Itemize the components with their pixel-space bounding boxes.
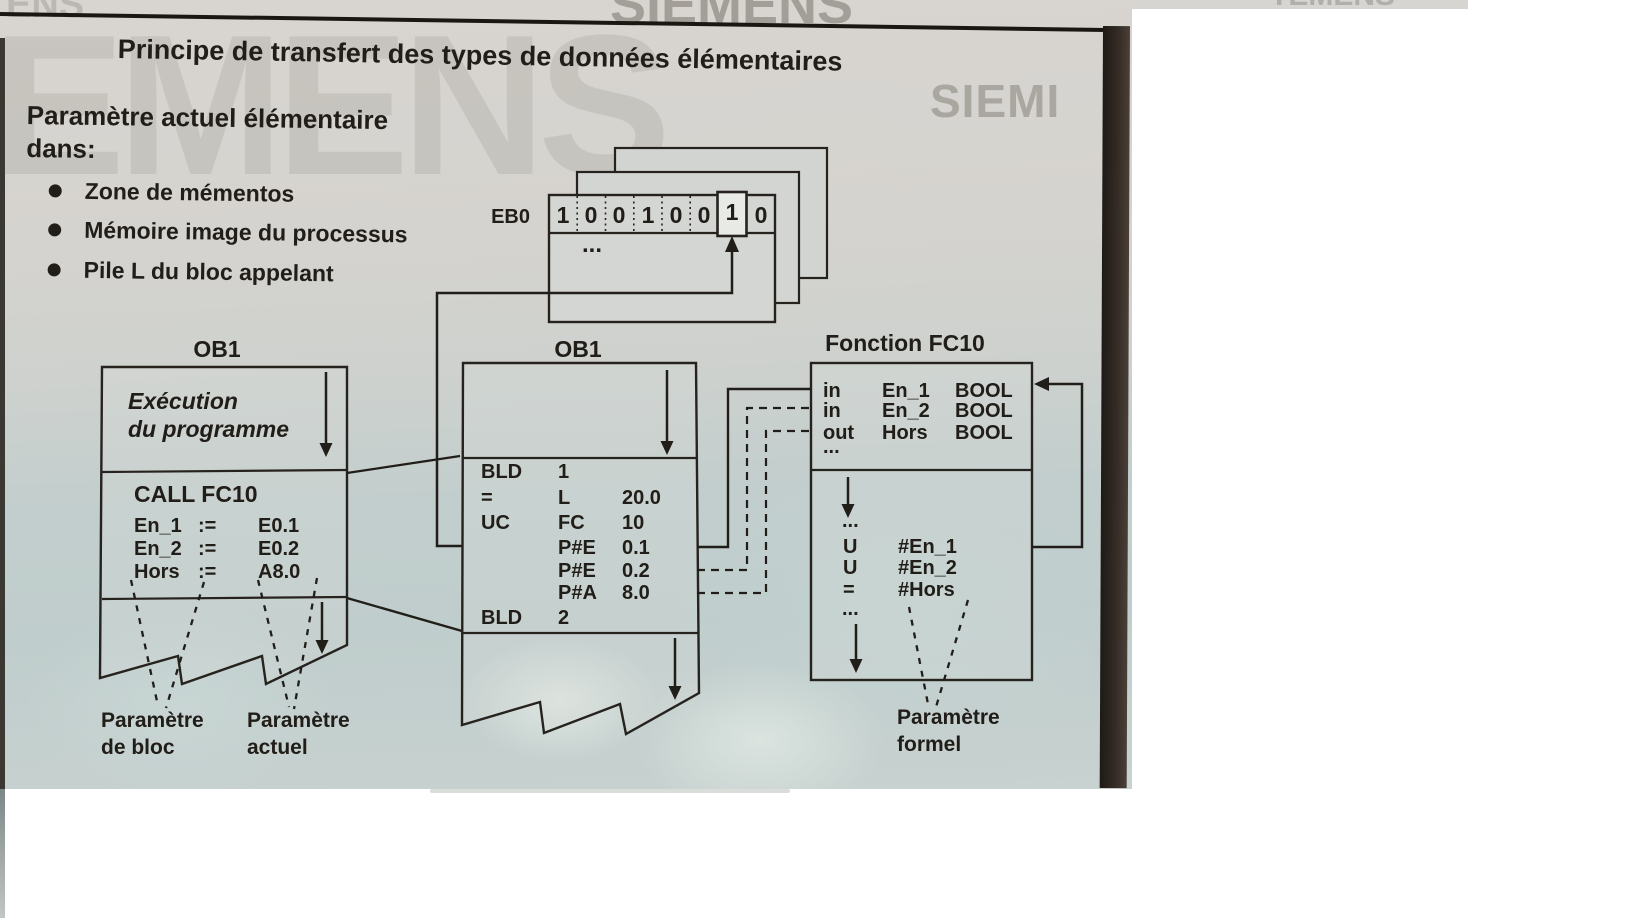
fc-code-operand: #En_2	[898, 557, 957, 579]
fc10-title: Fonction FC10	[790, 331, 1020, 357]
code-col3: 10	[622, 512, 644, 534]
intro-line-1: Paramètre actuel élémentaire	[27, 101, 389, 135]
bit-value: 0	[605, 197, 633, 233]
label-param-actual-2: actuel	[247, 736, 308, 760]
bullet-icon	[48, 263, 61, 276]
param-op: :=	[198, 538, 216, 560]
code-col3: 20.0	[622, 487, 661, 509]
memory-ellipsis: ...	[570, 232, 614, 259]
code-col1: BLD	[481, 607, 522, 629]
code-col1: UC	[481, 512, 510, 534]
iface-dir: in	[823, 400, 841, 422]
connector-dashed-hors	[697, 431, 811, 593]
list-item: Zone de mémentos	[49, 177, 295, 207]
slide-top-border	[0, 14, 1106, 30]
bit-value-highlighted: 1	[718, 194, 746, 230]
bullet-label: Mémoire image du processus	[84, 217, 408, 249]
fc-code-operand: #En_1	[898, 536, 957, 558]
bit-value: 0	[577, 197, 605, 233]
fc-code-operand: #Hors	[898, 579, 955, 601]
page-edge-below	[0, 788, 5, 918]
ob1-middle-title: OB1	[553, 337, 603, 363]
param-op: :=	[198, 515, 216, 537]
code-col2: P#E	[558, 560, 596, 582]
page-left-edge	[0, 38, 5, 789]
bullet-label: Zone de mémentos	[85, 178, 295, 208]
code-col2: 1	[558, 461, 569, 483]
code-col2: 2	[558, 607, 569, 629]
iface-name: En_2	[882, 400, 930, 422]
code-col2: L	[558, 487, 570, 509]
label-param-formal-1: Paramètre	[897, 706, 1000, 730]
label-param-block-2: de bloc	[101, 736, 175, 760]
code-col2: FC	[558, 512, 585, 534]
code-col3: 8.0	[622, 582, 650, 604]
param-value: E0.2	[258, 538, 299, 560]
fc10-feedback-loop	[1032, 377, 1082, 547]
code-col3: 0.1	[622, 537, 650, 559]
code-col1: BLD	[481, 461, 522, 483]
bit-value: 0	[747, 197, 775, 233]
bit-value: 1	[634, 197, 662, 233]
connector-dashed-en2	[697, 408, 811, 570]
ob1-left-call: CALL FC10	[134, 482, 258, 508]
iface-name: Hors	[882, 422, 928, 444]
page-bottom-shadow	[430, 789, 790, 793]
bit-value: 0	[690, 197, 718, 233]
param-value: A8.0	[258, 561, 300, 583]
connector-solid-en1	[697, 389, 811, 547]
fc10-ellipsis: ...	[823, 436, 840, 458]
arrow-left-icon	[1034, 377, 1049, 391]
param-op: :=	[198, 561, 216, 583]
ob1-left-exec-2: du programme	[128, 417, 289, 443]
list-item: Mémoire image du processus	[48, 216, 408, 248]
ob1-left-exec-1: Exécution	[128, 389, 238, 415]
code-col3: 0.2	[622, 560, 650, 582]
code-col2: P#E	[558, 537, 596, 559]
block-expansion-lines	[347, 456, 462, 631]
fc-code-op: U	[843, 557, 857, 579]
photographed-page: EMENS SIEMENS SIEMI ENS	[0, 0, 1132, 789]
screenshot-root: EMENS SIEMENS SIEMI ENS	[0, 0, 1632, 918]
bullet-icon	[48, 223, 61, 236]
siemens-watermark-sliver: TEMENS	[1270, 0, 1395, 9]
ob1-left-title: OB1	[192, 337, 242, 363]
bit-value: 1	[549, 197, 577, 233]
label-param-actual-1: Paramètre	[247, 709, 350, 733]
iface-type: BOOL	[955, 400, 1013, 422]
memory-byte-label: EB0	[478, 206, 530, 228]
bullet-icon	[49, 184, 62, 197]
param-value: E0.1	[258, 515, 299, 537]
label-param-formal-2: formel	[897, 733, 961, 757]
iface-type: BOOL	[955, 422, 1013, 444]
label-param-block-1: Paramètre	[101, 709, 204, 733]
fc10-ellipsis: ...	[842, 598, 859, 620]
param-name: En_1	[134, 515, 182, 537]
code-col2: P#A	[558, 582, 597, 604]
bit-value: 0	[662, 197, 690, 233]
connectors-ob1-to-fc10	[697, 389, 811, 593]
intro-line-2: dans:	[26, 134, 96, 164]
fc10-ellipsis: ...	[842, 510, 859, 532]
code-col1: =	[481, 487, 493, 509]
fc-code-op: U	[843, 536, 857, 558]
bullet-label: Pile L du bloc appelant	[83, 257, 333, 287]
param-name: Hors	[134, 561, 180, 583]
photo-top-sliver: TEMENS	[1130, 0, 1468, 9]
param-name: En_2	[134, 538, 182, 560]
list-item: Pile L du bloc appelant	[47, 256, 333, 287]
book-edge-strip	[1100, 26, 1130, 788]
